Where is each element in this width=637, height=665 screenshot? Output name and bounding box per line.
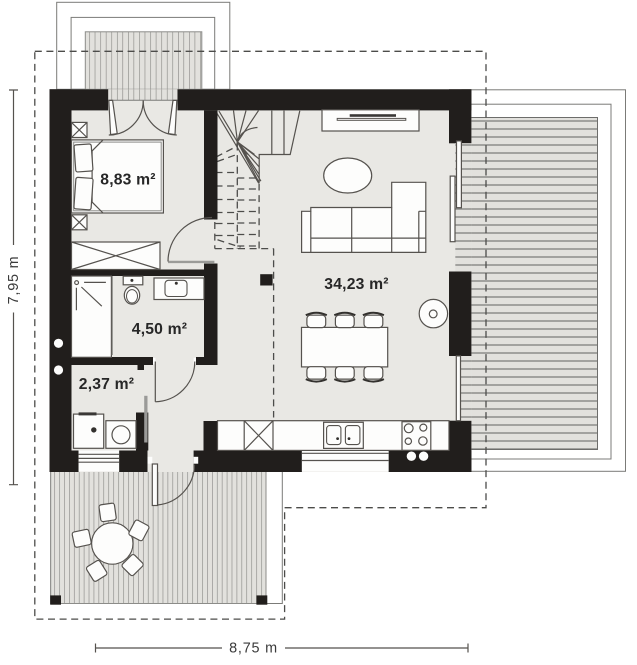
svg-text:8,83 m²: 8,83 m² bbox=[100, 172, 155, 189]
svg-text:2,37 m²: 2,37 m² bbox=[79, 376, 134, 393]
svg-text:8,75 m: 8,75 m bbox=[229, 641, 278, 657]
svg-text:7,95 m: 7,95 m bbox=[6, 256, 22, 305]
svg-text:34,23 m²: 34,23 m² bbox=[324, 276, 388, 293]
svg-text:4,50 m²: 4,50 m² bbox=[132, 321, 187, 338]
